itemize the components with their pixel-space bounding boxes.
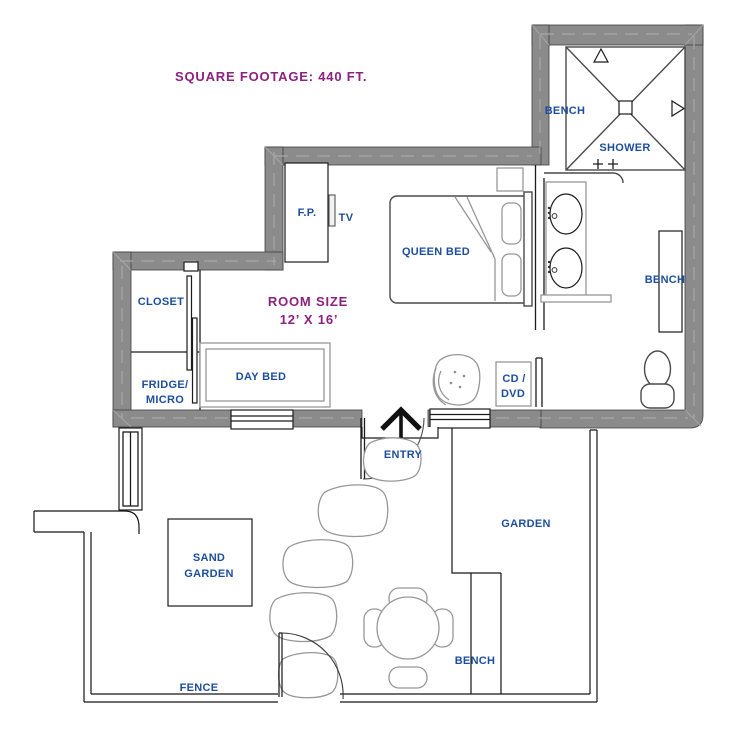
queen-bed-headboard — [524, 192, 532, 306]
interior-wall-bed-bath — [536, 165, 545, 330]
bench-bath-label: BENCH — [645, 274, 686, 286]
wall-bathroom-top — [532, 25, 703, 45]
window-left-garden — [119, 428, 142, 510]
shower-controls — [593, 159, 618, 169]
swivel-chair — [433, 355, 479, 405]
fridge-label-line1: FRIDGE/ — [142, 379, 189, 391]
floor-plan-drawing: SQUARE FOOTAGE: 440 FT. ROOM SIZE 12’ X … — [0, 0, 755, 734]
garden-label: GARDEN — [501, 518, 550, 530]
patio-table-set — [364, 588, 453, 688]
toilet-bowl — [645, 351, 671, 387]
bathroom-fixtures — [536, 165, 683, 408]
fence-bottom-right — [340, 694, 597, 702]
sand-garden-label-line2: GARDEN — [184, 568, 233, 580]
cd-dvd-label-line2: DVD — [501, 388, 525, 400]
cd-dvd-label-line1: CD / — [502, 373, 525, 385]
queen-bed-label: QUEEN BED — [402, 246, 470, 258]
fence-bottom-left — [84, 694, 278, 702]
day-bed-label: DAY BED — [236, 371, 286, 383]
closet-slider-panel-1 — [187, 276, 192, 370]
shower-label: SHOWER — [599, 142, 650, 154]
tv — [329, 195, 335, 226]
sand-garden-label-line1: SAND — [193, 552, 225, 564]
square-footage-label: SQUARE FOOTAGE: 440 FT. — [175, 69, 367, 84]
fence-upper-left-inner — [34, 511, 84, 532]
shower-drain — [619, 101, 632, 114]
vanity-base — [541, 295, 611, 302]
fridge-label-line2: MICRO — [146, 394, 184, 406]
pillow-top — [502, 203, 521, 244]
bench-garden-label: BENCH — [455, 655, 496, 667]
closet-door-jamb — [184, 262, 198, 271]
fence-right-vertical — [590, 430, 597, 702]
window-daybed — [231, 410, 293, 429]
window-entry-side — [430, 409, 490, 428]
bench-shower-label: BENCH — [545, 105, 586, 117]
tv-label: TV — [339, 212, 354, 224]
room-size-label-line2: 12’ X 16’ — [280, 312, 339, 327]
fence-label: FENCE — [180, 682, 219, 694]
fence-left-vertical — [84, 532, 91, 702]
entry-label: ENTRY — [384, 449, 423, 461]
fireplace-label: F.P. — [298, 207, 317, 219]
fence-upper-left-outer — [34, 511, 139, 534]
room-size-label-line1: ROOM SIZE — [268, 294, 348, 309]
shower-head-symbol-right — [672, 101, 684, 116]
floor-plan-page: SQUARE FOOTAGE: 440 FT. ROOM SIZE 12’ X … — [0, 0, 755, 734]
wall-upper-left-vertical — [265, 147, 283, 270]
stepping-stones — [270, 438, 421, 698]
pillow-bottom — [502, 254, 521, 296]
bath-door-leaf — [536, 358, 542, 407]
shower-head-symbol-top — [594, 49, 608, 62]
patio-table — [377, 597, 439, 659]
closet-slider-panel-2 — [193, 318, 198, 403]
closet-label: CLOSET — [138, 296, 184, 308]
nightstand — [497, 168, 523, 191]
bedroom-furniture — [131, 163, 532, 410]
toilet-tank — [641, 384, 674, 408]
